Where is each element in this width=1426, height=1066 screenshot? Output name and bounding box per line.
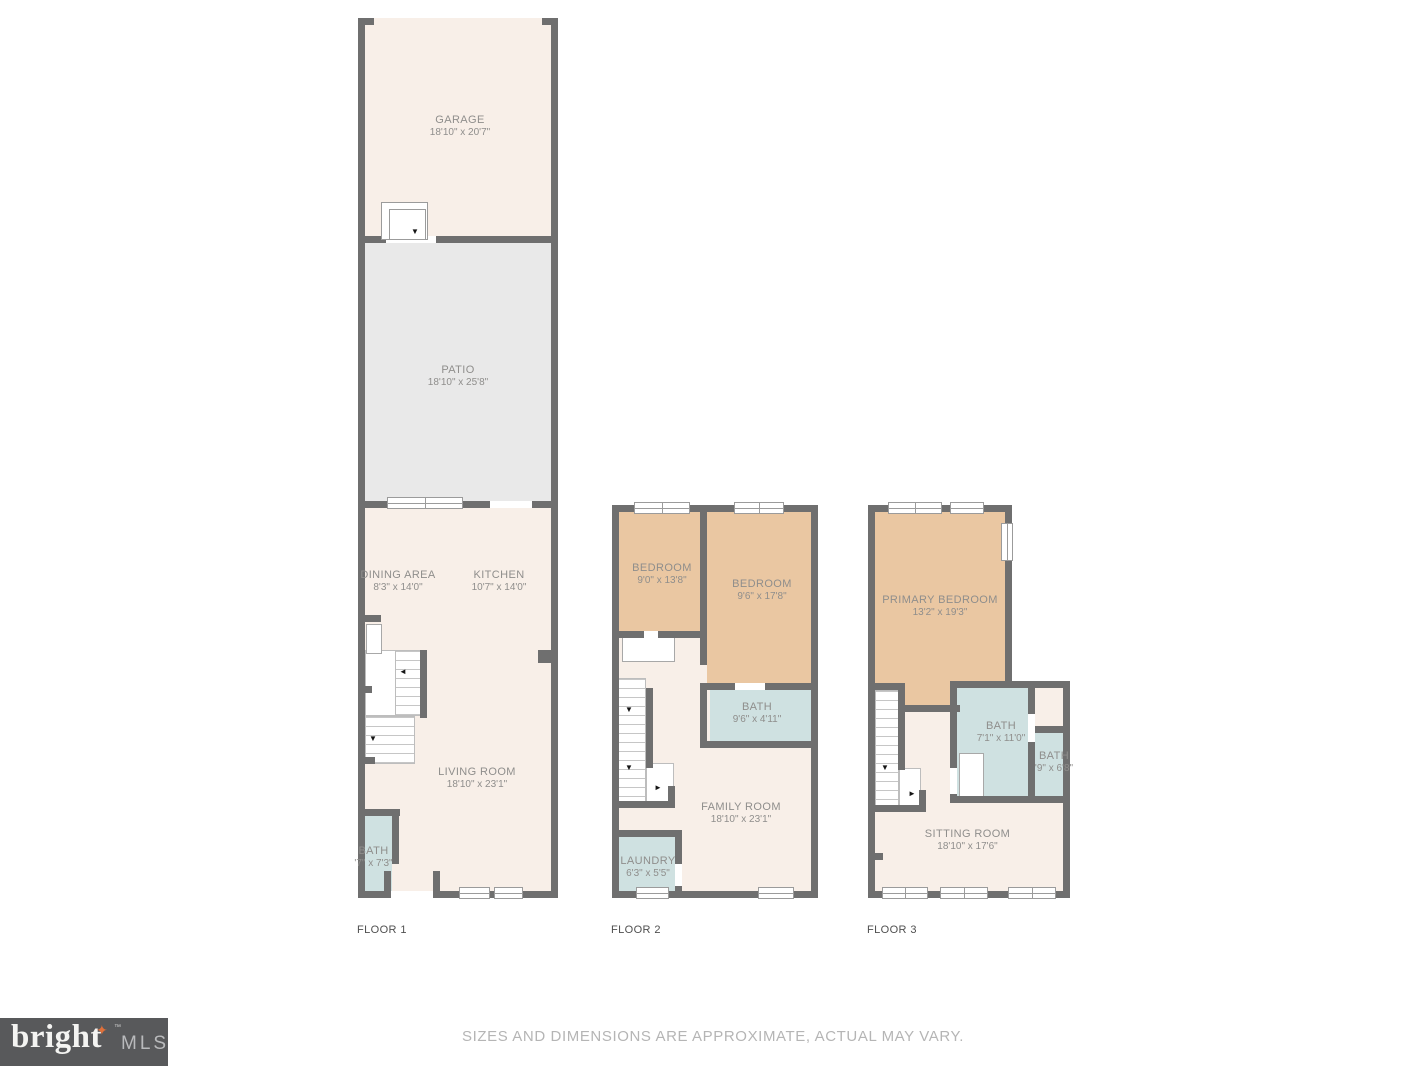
window — [1001, 523, 1013, 561]
staircase — [395, 650, 421, 716]
stair-direction-arrow: ◄ — [399, 668, 407, 676]
wall-segment — [551, 18, 558, 898]
room-label-laundry: LAUNDRY 6'3" x 5'5" — [598, 855, 698, 879]
closet-door-opening — [644, 631, 658, 638]
window — [940, 887, 988, 899]
wall-segment — [950, 681, 1070, 688]
window — [882, 887, 928, 899]
wall-segment — [612, 801, 675, 808]
window — [888, 502, 942, 514]
wall-segment — [646, 688, 653, 768]
wall-segment — [950, 796, 1063, 803]
window — [459, 887, 490, 899]
wall-segment — [358, 18, 365, 898]
room-label-bath2: BATH 9'6" x 4'11" — [697, 701, 817, 725]
front-door-opening — [391, 891, 433, 898]
door-swing — [389, 209, 426, 240]
wall-segment — [433, 871, 440, 898]
wall-segment — [420, 650, 427, 718]
stair-direction-arrow: ► — [654, 784, 662, 792]
closet — [366, 624, 382, 654]
room-label-bath2-f3: BATH '9" x 6'8" — [1028, 750, 1080, 774]
floor-2-label: FLOOR 2 — [611, 924, 661, 936]
wall-segment — [384, 871, 391, 898]
room-label-family: FAMILY ROOM 18'10" x 23'1" — [671, 801, 811, 825]
stair-landing — [365, 650, 396, 716]
bath-door-opening — [950, 768, 957, 794]
stair-direction-arrow: ▼ — [881, 764, 889, 772]
wall-segment — [898, 690, 905, 770]
room-label-primary: PRIMARY BEDROOM 13'2" x 19'3" — [860, 594, 1020, 618]
window — [634, 502, 690, 514]
door-direction-arrow: ▼ — [411, 228, 419, 236]
wall-segment — [919, 790, 926, 812]
bath-door-opening — [735, 683, 765, 690]
wall-segment — [868, 853, 883, 860]
window — [1008, 887, 1056, 899]
stair-landing — [899, 768, 921, 807]
wall-segment — [1028, 688, 1035, 800]
window — [387, 497, 463, 509]
room-label-kitchen: KITCHEN 10'7" x 14'0" — [439, 569, 559, 593]
wall-segment — [612, 631, 644, 638]
stair-direction-arrow: ▼ — [625, 706, 633, 714]
wall-segment — [868, 505, 875, 898]
closet — [622, 636, 675, 662]
window — [950, 502, 984, 514]
stair-direction-arrow: ▼ — [369, 735, 377, 743]
staircase — [875, 690, 899, 807]
room-label-bedroom2: BEDROOM 9'6" x 17'8" — [702, 578, 822, 602]
wall-segment — [612, 830, 682, 837]
patio-door-opening — [490, 501, 532, 508]
wall-segment — [358, 757, 375, 764]
stair-direction-arrow: ► — [908, 790, 916, 798]
wall-segment — [538, 650, 552, 663]
window — [758, 887, 794, 899]
room-label-living: LIVING ROOM 18'10" x 23'1" — [407, 766, 547, 790]
floor-1-label: FLOOR 1 — [357, 924, 407, 936]
wall-segment — [700, 741, 818, 748]
room-label-patio: PATIO 18'10" x 25'8" — [378, 364, 538, 388]
wall-segment — [365, 615, 381, 622]
floor-3-label: FLOOR 3 — [867, 924, 917, 936]
disclaimer-text: SIZES AND DIMENSIONS ARE APPROXIMATE, AC… — [0, 1028, 1426, 1045]
wall-segment — [868, 805, 926, 812]
wall-segment — [1063, 681, 1070, 898]
window — [636, 887, 669, 899]
wall-segment — [358, 686, 372, 693]
staircase — [615, 678, 646, 802]
room-label-garage: GARAGE 18'10" x 20'7" — [380, 114, 540, 138]
window — [734, 502, 784, 514]
wall-segment — [658, 631, 707, 638]
wall-segment — [868, 683, 905, 690]
window — [494, 887, 523, 899]
room-label-sitting: SITTING ROOM 18'10" x 17'6" — [895, 828, 1040, 852]
shower-closet — [959, 753, 984, 798]
stair-direction-arrow: ▼ — [625, 764, 633, 772]
room-label-bath1: BATH '7" x 7'3" — [346, 845, 401, 869]
room-label-bath1-f3: BATH 7'1" x 11'0" — [951, 720, 1051, 744]
